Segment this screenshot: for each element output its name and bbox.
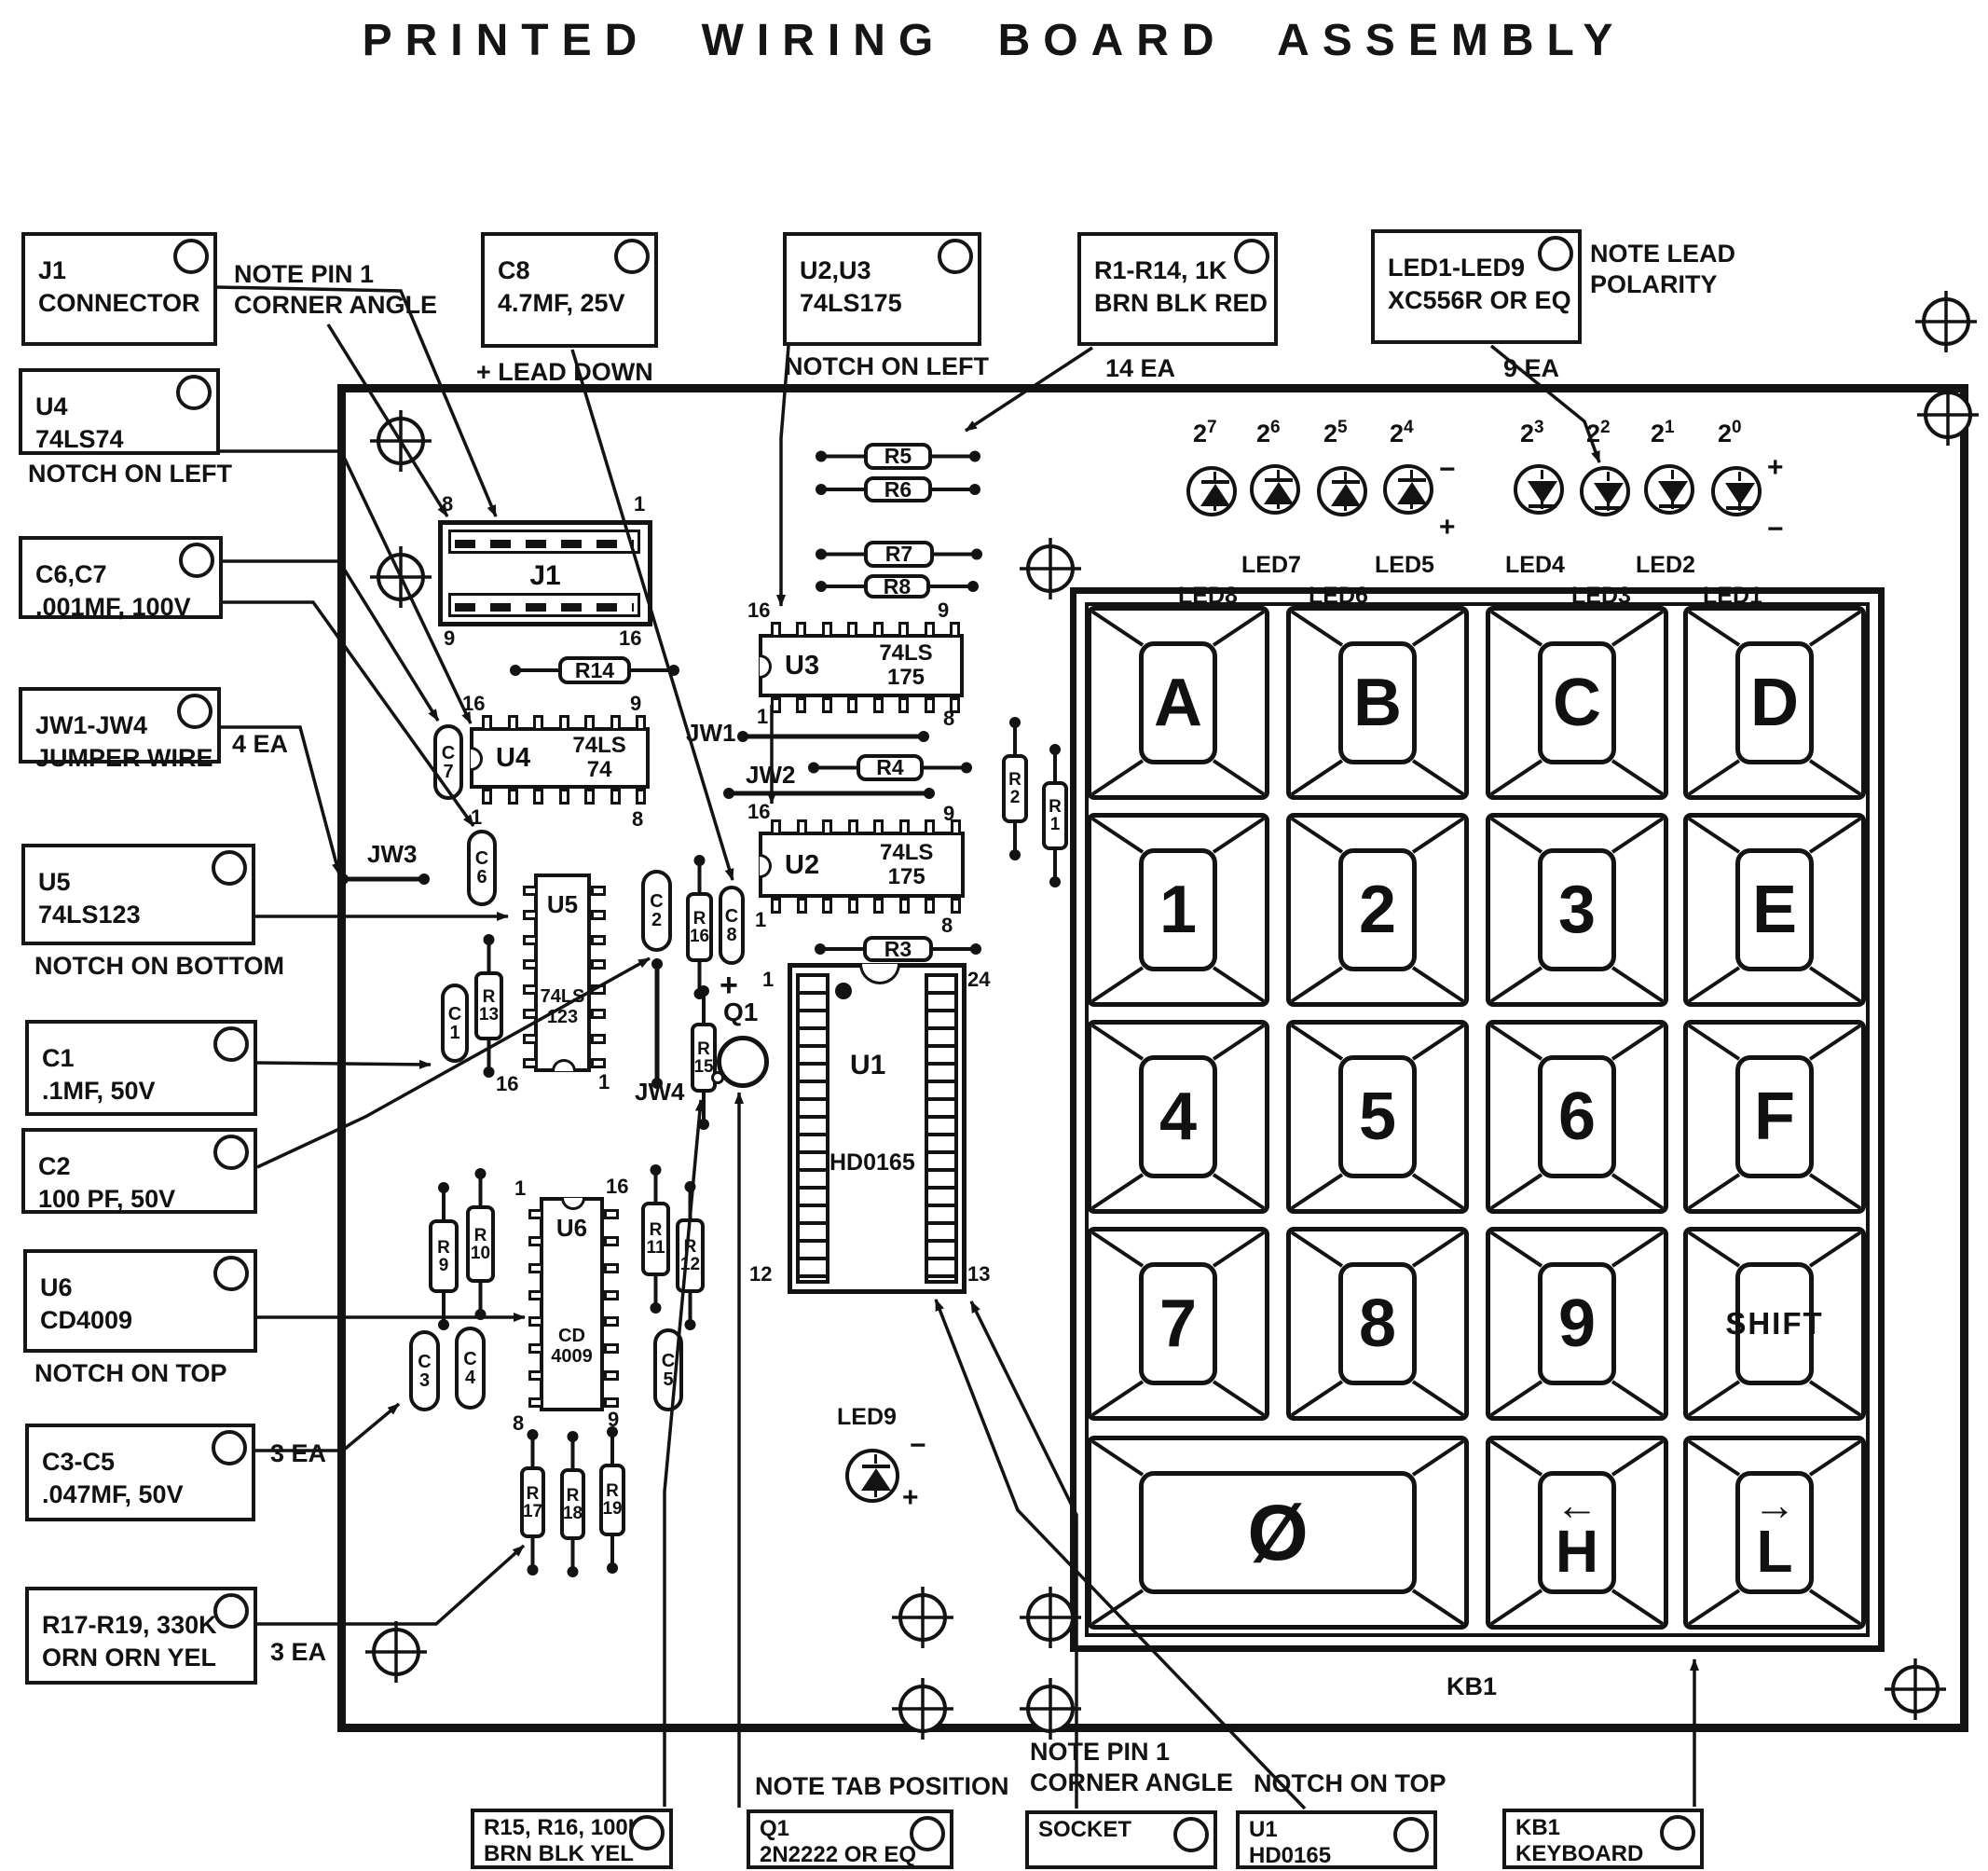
ic-pin	[528, 1343, 543, 1354]
ic-pin	[822, 898, 832, 914]
power-base: 2	[1323, 420, 1337, 447]
note-line: NOTCH ON TOP	[34, 1358, 227, 1389]
ic-pin	[523, 886, 538, 896]
ic-pin	[951, 898, 961, 914]
resistor-r11: R11	[641, 1202, 670, 1276]
ic-pin	[533, 789, 543, 805]
balloon-circle-icon	[177, 694, 213, 729]
resistor-label-line: R	[606, 1482, 619, 1500]
callout-text: XC556R OR EQ	[1375, 284, 1578, 317]
ic-pin	[591, 935, 606, 945]
ic-pin	[847, 622, 857, 638]
note-notch-left-u2u3: NOTCH ON LEFT	[785, 351, 989, 382]
balloon-circle-icon	[212, 1430, 247, 1465]
ic-pin	[604, 1290, 619, 1300]
ic-pin	[604, 1236, 619, 1246]
callout-box-u1: U1HD0165	[1236, 1810, 1437, 1869]
pin-number-label: 9	[943, 802, 954, 826]
capacitor-label-line: 8	[726, 926, 736, 944]
callout-box-c8: C84.7MF, 25V	[481, 232, 658, 348]
ic-pin	[591, 1034, 606, 1044]
ic-part-line: 74LS	[855, 841, 958, 865]
pin-number-label: 1	[755, 908, 766, 932]
capacitor-c3: C3	[409, 1330, 440, 1411]
power-exponent: 6	[1270, 418, 1281, 437]
callout-text: CD4009	[27, 1304, 254, 1337]
j1-pin-strip-bottom	[448, 593, 640, 617]
led-led8	[1186, 466, 1237, 516]
led-lead-stem	[1671, 500, 1674, 509]
capacitor-label-line: C	[463, 1350, 476, 1369]
led-name-label: LED4	[1505, 552, 1565, 579]
power-exponent: 1	[1665, 418, 1675, 437]
keycap: 7	[1139, 1262, 1217, 1385]
resistor-label-line: 9	[439, 1257, 449, 1274]
capacitor-c5: C5	[653, 1328, 683, 1411]
key-label: C	[1553, 665, 1601, 741]
ic-pin	[898, 697, 909, 713]
ic-pin	[482, 789, 492, 805]
pin-number-label: 1	[634, 492, 645, 516]
socket-pin-ladder-right	[925, 973, 958, 1284]
callout-box-u2-u3: U2,U374LS175	[783, 232, 981, 346]
pin-number-label: 1	[471, 805, 482, 830]
power-base: 2	[1520, 420, 1534, 447]
power-exponent: 7	[1207, 418, 1217, 437]
resistor-r3: R3	[863, 936, 933, 962]
key-label: 9	[1558, 1286, 1596, 1362]
ic-part-line: 123	[538, 1007, 587, 1027]
resistor-label-line: R	[527, 1485, 540, 1503]
led-lead-stem	[1738, 502, 1741, 511]
balloon-circle-icon	[1660, 1815, 1695, 1850]
key-label: 2	[1359, 872, 1396, 948]
note-notch-top-u6: NOTCH ON TOP	[34, 1358, 227, 1389]
ic-pin	[533, 715, 543, 731]
led-name-label: LED7	[1241, 552, 1301, 579]
note-line: NOTE LEAD	[1590, 239, 1735, 269]
note-qty-14ea: 14 EA	[1105, 353, 1175, 384]
key-label: 5	[1359, 1079, 1396, 1155]
balloon-circle-icon	[213, 1026, 249, 1062]
ic-u1-hd0165: U1HD0165	[788, 963, 967, 1294]
callout-text: 100 PF, 50V	[25, 1183, 254, 1216]
resistor-label-line: R	[483, 988, 496, 1006]
ic-pin	[925, 622, 935, 638]
note-notch-left-u4: NOTCH ON LEFT	[28, 459, 232, 489]
keycap: B	[1338, 641, 1417, 764]
led-lead-stem	[1607, 502, 1610, 511]
power-base: 2	[1390, 420, 1404, 447]
ic-name: U4	[496, 743, 530, 774]
jumper-label-jw4: JW4	[635, 1078, 684, 1107]
resistor-r17: R17	[520, 1466, 545, 1538]
key-label: 6	[1558, 1079, 1596, 1155]
led-lead-stem	[1344, 472, 1347, 481]
resistor-r18: R18	[560, 1468, 585, 1540]
ic-pin	[610, 715, 621, 731]
note-note-pin1-bottom: NOTE PIN 1CORNER ANGLE	[1030, 1737, 1233, 1798]
resistor-r6: R6	[864, 476, 932, 502]
callout-text: .1MF, 50V	[29, 1075, 254, 1107]
callout-text: 74LS175	[787, 287, 978, 320]
key-label: B	[1353, 665, 1402, 741]
ic-part: 74LS74	[555, 734, 645, 782]
pin1-dot-icon	[835, 983, 852, 999]
ic-pin	[559, 715, 569, 731]
ic-pin	[528, 1209, 543, 1219]
led-led1	[1711, 466, 1762, 516]
callout-text: 74LS123	[25, 899, 252, 931]
pin-number-label: 16	[747, 598, 770, 623]
ic-pin	[873, 898, 884, 914]
note-line: NOTCH ON BOTTOM	[34, 951, 284, 982]
resistor-r13: R13	[474, 971, 503, 1040]
callout-box-kb1: KB1KEYBOARD	[1502, 1809, 1704, 1869]
ic-pin	[604, 1263, 619, 1273]
ic-pin	[528, 1263, 543, 1273]
capacitor-c1: C1	[441, 984, 469, 1063]
transistor-q1	[717, 1036, 769, 1088]
callout-text: 4.7MF, 25V	[485, 287, 654, 320]
keycap: 4	[1139, 1055, 1217, 1178]
led-polarity-sign: +	[1767, 452, 1784, 484]
balloon-circle-icon	[1538, 236, 1573, 271]
pin-number-label: 9	[444, 626, 455, 651]
ic-pin	[482, 715, 492, 731]
ic-u3: U374LS175	[759, 634, 964, 697]
resistor-label-line: 19	[602, 1500, 622, 1518]
led-lead-stem	[1738, 472, 1741, 481]
led-led5	[1383, 464, 1433, 515]
led-led9	[845, 1449, 899, 1503]
ic-pin	[523, 1034, 538, 1044]
resistor-label-line: R	[567, 1487, 580, 1505]
keypad-designator: KB1	[1446, 1672, 1497, 1701]
led-lead-stem	[1344, 502, 1347, 511]
capacitor-label-line: 7	[443, 763, 453, 781]
led-name-label: LED2	[1636, 552, 1695, 579]
ic-pin	[523, 935, 538, 945]
led-lead-stem	[1410, 470, 1413, 479]
jumper-label-jw1: JW1	[686, 719, 735, 748]
ic-pin	[950, 622, 960, 638]
callout-box-led1-led9: LED1-LED9XC556R OR EQ	[1371, 229, 1582, 344]
balloon-circle-icon	[212, 850, 247, 886]
balloon-circle-icon	[213, 1256, 249, 1291]
callout-text: CONNECTOR	[25, 287, 213, 320]
ic-pin	[797, 819, 807, 835]
pin-number-label: 9	[630, 692, 641, 716]
note-line: POLARITY	[1590, 269, 1735, 300]
balloon-circle-icon	[910, 1816, 945, 1851]
ic-pin	[604, 1316, 619, 1327]
led-led2	[1644, 464, 1694, 515]
callout-box-socket: SOCKET	[1025, 1810, 1217, 1869]
power-exponent: 3	[1534, 418, 1544, 437]
ic-pin	[584, 789, 595, 805]
note-line: CORNER ANGLE	[234, 290, 437, 321]
led-power-label: 23	[1520, 418, 1544, 448]
balloon-circle-icon	[938, 239, 973, 274]
pin-number-label: 1	[757, 705, 768, 729]
ic-pin	[508, 715, 518, 731]
balloon-circle-icon	[213, 1593, 249, 1629]
resistor-label-line: 12	[680, 1256, 700, 1273]
resistor-label-line: R	[697, 1040, 710, 1058]
callout-text: BRN BLK RED	[1081, 287, 1274, 320]
resistor-label-line: 15	[693, 1058, 713, 1076]
ic-u2: U274LS175	[759, 832, 965, 898]
balloon-circle-icon	[1234, 239, 1269, 274]
capacitor-label-line: C	[650, 892, 663, 911]
note-note-tab-position: NOTE TAB POSITION	[755, 1771, 1009, 1802]
keycap: 3	[1538, 848, 1616, 971]
ic-pin	[899, 898, 910, 914]
led-power-label: 24	[1390, 418, 1414, 448]
led-lead-stem	[1671, 470, 1674, 479]
balloon-circle-icon	[213, 1135, 249, 1170]
led-lead-stem	[1607, 472, 1610, 481]
ic-pin	[925, 697, 935, 713]
capacitor-c4: C4	[455, 1327, 486, 1410]
resistor-label-line: R	[1008, 771, 1021, 789]
note-line: NOTCH ON LEFT	[785, 351, 989, 382]
balloon-circle-icon	[179, 543, 214, 578]
ic-pin	[796, 697, 806, 713]
ic-u6: U6CD4009	[540, 1197, 604, 1411]
resistor-label-line: 11	[646, 1239, 665, 1257]
callout-box-jw1-jw4: JW1-JW4JUMPER WIRE	[19, 687, 221, 764]
resistor-label-line: R	[474, 1227, 487, 1245]
callout-text: 74LS74	[22, 423, 216, 456]
printed-wiring-board-assembly-diagram: PRINTED WIRING BOARD ASSEMBLY J1CONNECTO…	[0, 0, 1988, 1871]
pin-number-label: 9	[938, 598, 949, 623]
resistor-r9: R9	[429, 1219, 459, 1293]
note-line: 4 EA	[232, 729, 288, 760]
led-lead-stem	[1213, 502, 1216, 511]
ic-part-line: 74LS	[855, 641, 957, 666]
ic-pin	[610, 789, 621, 805]
ic-pin	[848, 898, 858, 914]
ic-pin	[822, 697, 832, 713]
ic-part-line: 4009	[543, 1346, 600, 1367]
notch-icon	[471, 747, 483, 771]
resistor-r12: R12	[676, 1218, 705, 1293]
capacitor-label-line: 1	[449, 1024, 459, 1042]
ic-part-line: 175	[855, 865, 958, 889]
keycap: 6	[1538, 1055, 1616, 1178]
resistor-r5: R5	[864, 443, 932, 470]
resistor-label-line: R	[1049, 798, 1062, 816]
ic-pin	[604, 1397, 619, 1408]
callout-box-c6-c7: C6,C7.001MF, 100V	[19, 536, 223, 619]
led-polarity-sign: −	[910, 1430, 926, 1462]
led-lead-stem	[1213, 472, 1216, 481]
led-lead-stem	[1410, 500, 1413, 509]
note-line: 9 EA	[1503, 353, 1559, 384]
ic-pin	[604, 1370, 619, 1381]
pin-number-label: 13	[967, 1262, 990, 1286]
led-lead-stem	[1541, 500, 1543, 509]
resistor-r10: R10	[466, 1205, 495, 1283]
ic-part-line: 74LS	[555, 734, 645, 758]
ic-pin	[528, 1290, 543, 1300]
led-led6	[1317, 466, 1367, 516]
key-label: L	[1756, 1523, 1792, 1579]
pin-number-label: 8	[632, 807, 643, 832]
note-line: NOTE PIN 1	[1030, 1737, 1233, 1768]
led-lead-stem	[1541, 470, 1543, 479]
note-line: + LEAD DOWN	[476, 357, 653, 388]
pin-number-label: 8	[943, 707, 954, 731]
notch-icon	[760, 654, 772, 679]
jumper-label-jw3: JW3	[367, 840, 417, 869]
resistor-label-line: 17	[523, 1503, 542, 1520]
ic-part-line: CD	[543, 1326, 600, 1346]
pin-number-label: 1	[514, 1176, 526, 1201]
keycap: 9	[1538, 1262, 1616, 1385]
note-line: CORNER ANGLE	[1030, 1768, 1233, 1798]
led-lead-stem	[874, 1454, 877, 1464]
ic-part-line: 175	[855, 666, 957, 690]
led-power-label: 22	[1586, 418, 1611, 448]
ic-name: U5	[538, 890, 587, 919]
balloon-circle-icon	[1173, 1817, 1209, 1852]
balloon-circle-icon	[176, 375, 212, 410]
keycap: E	[1735, 848, 1814, 971]
ic-pin	[822, 622, 832, 638]
ic-part: 74LS123	[538, 986, 587, 1027]
pin-number-label: 1	[762, 968, 774, 992]
resistor-label-line: 10	[471, 1245, 490, 1262]
led-polarity-sign: +	[1439, 512, 1456, 543]
callout-box-r1-r14: R1-R14, 1KBRN BLK RED	[1077, 232, 1278, 346]
ic-pin	[591, 910, 606, 920]
capacitor-label-line: C	[725, 907, 738, 926]
capacitor-label-line: C	[448, 1005, 461, 1024]
key-label: SHIFT	[1725, 1306, 1823, 1341]
capacitor-label-line: C	[418, 1353, 431, 1371]
ic-pin	[873, 697, 884, 713]
callout-box-r15-r16: R15, R16, 100KBRN BLK YEL	[471, 1809, 673, 1869]
power-base: 2	[1586, 420, 1600, 447]
pin-number-label: 16	[496, 1072, 518, 1096]
ic-pin	[771, 622, 781, 638]
led-lead-stem	[1277, 500, 1280, 509]
callout-text: .047MF, 50V	[29, 1479, 252, 1511]
j1-label: J1	[443, 560, 648, 592]
ic-pin	[523, 959, 538, 970]
power-base: 2	[1256, 420, 1270, 447]
page-title: PRINTED WIRING BOARD ASSEMBLY	[0, 15, 1988, 66]
notch-icon	[760, 854, 772, 878]
note-qty-4ea: 4 EA	[232, 729, 288, 760]
resistor-r1: R1	[1042, 781, 1068, 850]
pin-number-label: 12	[749, 1262, 772, 1286]
ic-pin	[528, 1397, 543, 1408]
capacitor-label-line: C	[662, 1352, 675, 1370]
pin-number-label: 16	[462, 692, 485, 716]
callout-text: ORN ORN YEL	[29, 1642, 254, 1674]
ic-pin	[584, 715, 595, 731]
j1-pin-dashes	[455, 540, 634, 548]
note-note-pin1-top: NOTE PIN 1CORNER ANGLE	[234, 259, 437, 321]
ic-pin	[604, 1343, 619, 1354]
callout-box-c2: C2100 PF, 50V	[21, 1128, 257, 1214]
ic-pin	[636, 715, 646, 731]
balloon-circle-icon	[1393, 1817, 1429, 1852]
callout-text: .001MF, 100V	[22, 591, 219, 624]
pin-number-label: 8	[941, 914, 953, 938]
key-label: 8	[1359, 1286, 1396, 1362]
transistor-q1-tab-icon	[711, 1071, 724, 1084]
capacitor-c6: C6	[467, 830, 497, 906]
callout-text: JUMPER WIRE	[22, 742, 217, 775]
keycap: ←H	[1538, 1471, 1616, 1594]
note-line: 3 EA	[270, 1438, 326, 1469]
ic-part: 74LS175	[855, 641, 957, 690]
resistor-r16: R16	[686, 892, 713, 962]
note-qty-9ea: 9 EA	[1503, 353, 1559, 384]
pin-number-label: 16	[606, 1175, 628, 1199]
ic-pin	[528, 1370, 543, 1381]
led-power-label: 27	[1193, 418, 1217, 448]
led-polarity-sign: −	[1767, 514, 1784, 545]
led-name-label: LED9	[837, 1404, 897, 1431]
power-base: 2	[1193, 420, 1207, 447]
ic-pin	[604, 1209, 619, 1219]
resistor-r8: R8	[864, 574, 930, 598]
keycap: Ø	[1139, 1471, 1417, 1594]
led-lead-stem	[1277, 470, 1280, 479]
led-power-label: 25	[1323, 418, 1348, 448]
capacitor-c7: C7	[433, 724, 463, 800]
capacitor-c2: C2	[641, 870, 672, 952]
notch-icon	[859, 964, 900, 984]
pin-number-label: 16	[619, 626, 641, 651]
ic-pin	[873, 819, 884, 835]
key-label: 7	[1159, 1286, 1197, 1362]
callout-box-j1-connector: J1CONNECTOR	[21, 232, 217, 346]
note-line: NOTCH ON TOP	[1254, 1768, 1446, 1799]
power-base: 2	[1651, 420, 1665, 447]
led-led7	[1250, 464, 1300, 515]
capacitor-label-line: 2	[651, 911, 662, 929]
power-exponent: 0	[1732, 418, 1742, 437]
resistor-label-line: 2	[1010, 789, 1021, 806]
ic-pin	[822, 819, 832, 835]
note-line: NOTCH ON LEFT	[28, 459, 232, 489]
keycap: 1	[1139, 848, 1217, 971]
note-line: NOTE PIN 1	[234, 259, 437, 290]
ic-name: U3	[785, 651, 819, 681]
note-qty-3ea-r: 3 EA	[270, 1637, 326, 1668]
note-lead-down: + LEAD DOWN	[476, 357, 653, 388]
resistor-label-line: 1	[1050, 816, 1061, 833]
callout-box-u6: U6CD4009	[23, 1249, 257, 1353]
pin-number-label: 24	[967, 968, 990, 992]
j1-pin-dashes	[455, 603, 634, 612]
ic-pin	[771, 697, 781, 713]
led-polarity-sign: +	[902, 1482, 919, 1514]
ic-part-line: 74LS	[538, 986, 587, 1007]
ic-pin	[523, 1058, 538, 1068]
pin-number-label: 9	[608, 1408, 619, 1432]
ic-pin	[591, 1009, 606, 1019]
led-power-label: 20	[1718, 418, 1742, 448]
resistor-label-line: R	[693, 910, 706, 928]
